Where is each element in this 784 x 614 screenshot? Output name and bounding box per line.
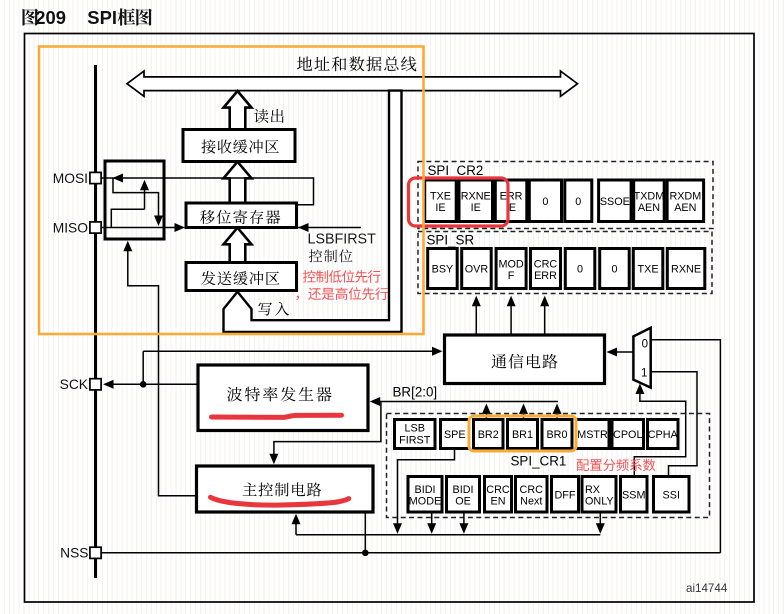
svg-text:0: 0 <box>542 196 548 208</box>
svg-text:0: 0 <box>642 338 648 350</box>
svg-text:DFF: DFF <box>555 489 576 501</box>
svg-text:1: 1 <box>641 367 647 379</box>
svg-text:SPI_SR: SPI_SR <box>427 233 475 248</box>
svg-text:NSS: NSS <box>60 546 88 561</box>
svg-text:0: 0 <box>575 196 581 208</box>
svg-text:209: 209 <box>35 7 66 28</box>
svg-text:TXDM: TXDM <box>634 191 665 203</box>
svg-text:BSY: BSY <box>432 264 454 276</box>
svg-text:LSB: LSB <box>405 423 425 435</box>
svg-text:RX: RX <box>585 484 600 496</box>
svg-text:RXNE: RXNE <box>671 264 701 276</box>
svg-text:BR[2:0]: BR[2:0] <box>393 385 438 400</box>
svg-text:BR1: BR1 <box>512 429 533 441</box>
svg-text:BR2: BR2 <box>478 429 499 441</box>
svg-text:BIDI: BIDI <box>453 484 474 496</box>
svg-text:SSI: SSI <box>663 489 680 501</box>
svg-text:SPI_CR1: SPI_CR1 <box>511 454 567 469</box>
svg-text:IE: IE <box>435 202 445 214</box>
svg-text:RXNE: RXNE <box>461 191 491 203</box>
svg-text:MISO: MISO <box>53 220 89 235</box>
svg-text:SSM: SSM <box>622 489 645 501</box>
svg-text:ai14744: ai14744 <box>686 582 728 595</box>
svg-text:Next: Next <box>520 496 542 508</box>
svg-text:BR0: BR0 <box>546 429 567 441</box>
svg-text:AEN: AEN <box>674 202 696 214</box>
svg-text:CRC: CRC <box>520 484 544 496</box>
svg-text:MODE: MODE <box>409 496 441 508</box>
svg-text:TXE: TXE <box>638 264 659 276</box>
svg-text:0: 0 <box>611 264 617 276</box>
svg-text:SPI_CR2: SPI_CR2 <box>428 163 484 178</box>
svg-text:AEN: AEN <box>638 202 660 214</box>
svg-text:EN: EN <box>491 496 506 508</box>
svg-text:CPOL: CPOL <box>613 429 642 441</box>
svg-text:LSBFIRST: LSBFIRST <box>308 232 377 248</box>
svg-text:ERR: ERR <box>534 270 557 282</box>
svg-text:CPHA: CPHA <box>648 429 679 441</box>
svg-text:F: F <box>508 270 515 282</box>
svg-text:TXE: TXE <box>430 191 451 203</box>
svg-text:MOSI: MOSI <box>53 171 88 186</box>
svg-text:ONLY: ONLY <box>585 496 614 508</box>
svg-text:SPE: SPE <box>444 429 466 441</box>
svg-text:SCK: SCK <box>60 377 89 392</box>
svg-text:BIDI: BIDI <box>415 484 436 496</box>
svg-text:0: 0 <box>577 264 583 276</box>
svg-text:IE: IE <box>471 202 481 214</box>
svg-text:RXDM: RXDM <box>669 191 701 203</box>
svg-text:SSOE: SSOE <box>600 196 630 208</box>
svg-text:ERR: ERR <box>500 191 523 203</box>
svg-text:FIRST: FIRST <box>399 435 431 447</box>
svg-text:OVR: OVR <box>465 264 489 276</box>
svg-text:MOD: MOD <box>498 258 523 270</box>
svg-text:CRC: CRC <box>534 258 558 270</box>
svg-text:OE: OE <box>455 496 471 508</box>
svg-text:CRC: CRC <box>486 484 510 496</box>
svg-text:SPI: SPI <box>87 7 117 28</box>
svg-text:MSTR: MSTR <box>577 429 608 441</box>
